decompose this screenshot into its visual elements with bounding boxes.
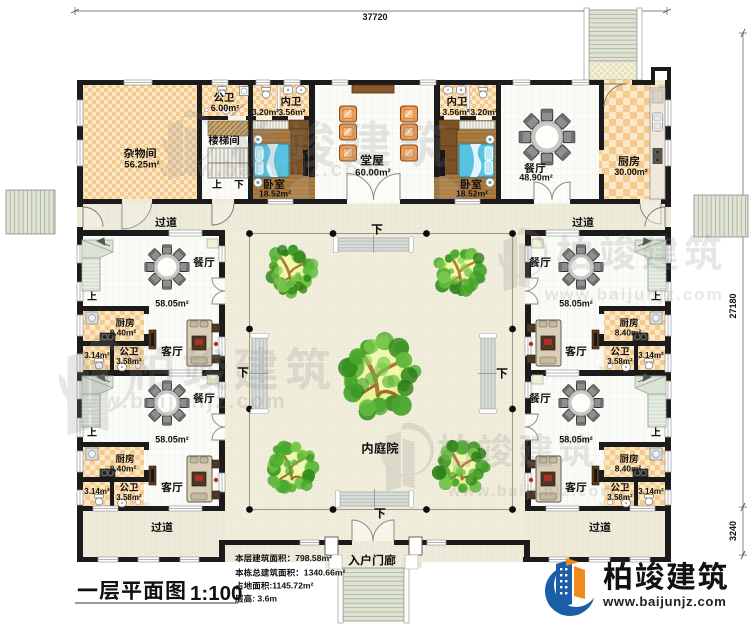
svg-text:3.56m²: 3.56m² bbox=[442, 107, 469, 117]
svg-text:1:100: 1:100 bbox=[190, 582, 242, 605]
svg-text:58.05m²: 58.05m² bbox=[155, 299, 189, 309]
svg-text:3.14m²: 3.14m² bbox=[638, 487, 664, 496]
svg-text:8.40m²: 8.40m² bbox=[615, 464, 642, 474]
svg-text:60.00m²: 60.00m² bbox=[355, 167, 390, 178]
svg-text:3.14m²: 3.14m² bbox=[638, 351, 664, 360]
svg-text:3.14m²: 3.14m² bbox=[84, 351, 110, 360]
svg-text:www.baijunjz.com: www.baijunjz.com bbox=[602, 594, 726, 609]
svg-text:18.52m²: 18.52m² bbox=[259, 189, 291, 199]
svg-text:: 3.6m: : 3.6m bbox=[252, 594, 277, 604]
svg-text:3.56m²: 3.56m² bbox=[278, 107, 305, 117]
svg-text:3.58m²: 3.58m² bbox=[116, 493, 142, 502]
svg-text:www.baijunjz.com: www.baijunjz.com bbox=[447, 483, 617, 500]
svg-text:18.52m²: 18.52m² bbox=[456, 189, 488, 199]
svg-text:3.14m²: 3.14m² bbox=[84, 487, 110, 496]
svg-text:30.00m²: 30.00m² bbox=[614, 167, 648, 177]
svg-text:3.58m²: 3.58m² bbox=[116, 357, 142, 366]
svg-text:8.40m²: 8.40m² bbox=[110, 328, 137, 338]
svg-text:37720: 37720 bbox=[362, 12, 387, 22]
svg-text:58.05m²: 58.05m² bbox=[559, 435, 593, 445]
svg-text:3.20m²: 3.20m² bbox=[252, 107, 279, 117]
svg-text:798.58m²: 798.58m² bbox=[295, 553, 332, 563]
svg-text:56.25m²: 56.25m² bbox=[124, 159, 159, 170]
svg-text:8.40m²: 8.40m² bbox=[615, 328, 642, 338]
svg-text:3.20m²: 3.20m² bbox=[470, 107, 497, 117]
svg-text:27180: 27180 bbox=[728, 293, 738, 318]
svg-text:www.baijunjz.com: www.baijunjz.com bbox=[159, 158, 381, 181]
svg-text:8.40m²: 8.40m² bbox=[110, 464, 137, 474]
svg-text::1145.72m²: :1145.72m² bbox=[269, 581, 313, 591]
svg-text:3.58m²: 3.58m² bbox=[607, 357, 633, 366]
svg-text:1340.66m²: 1340.66m² bbox=[304, 568, 346, 578]
svg-text:3240: 3240 bbox=[728, 521, 738, 541]
svg-text:48.90m²: 48.90m² bbox=[519, 173, 553, 183]
svg-text:3.58m²: 3.58m² bbox=[607, 493, 633, 502]
svg-text:58.05m²: 58.05m² bbox=[155, 435, 189, 445]
svg-text:www.baijunjz.com: www.baijunjz.com bbox=[65, 390, 287, 413]
svg-text:6.00m²: 6.00m² bbox=[211, 103, 240, 113]
svg-text:58.05m²: 58.05m² bbox=[559, 299, 593, 309]
